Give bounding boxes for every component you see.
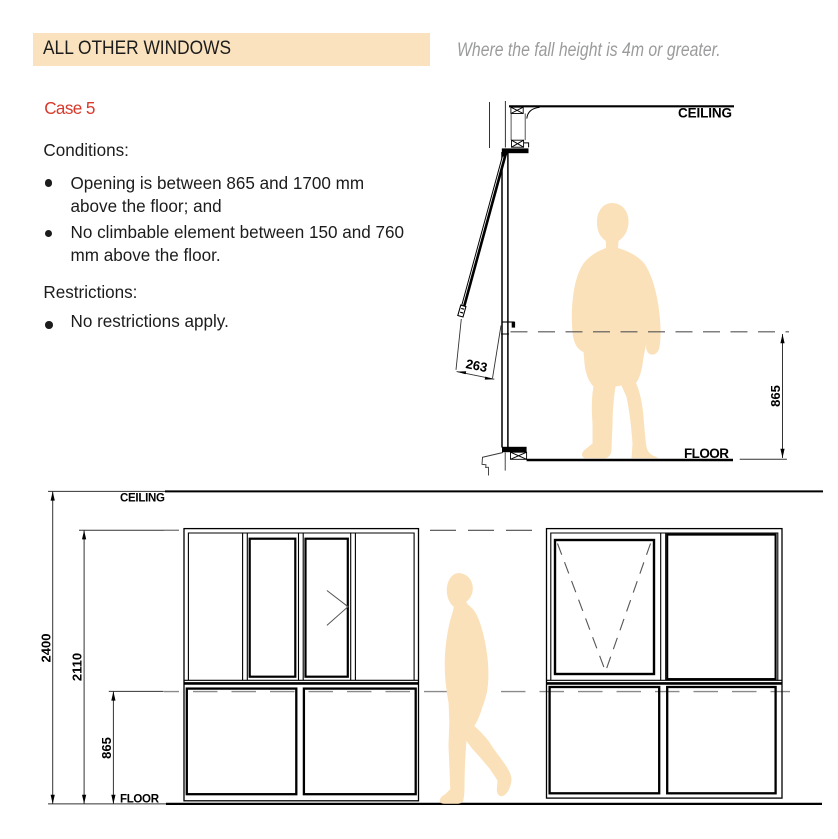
svg-text:CEILING: CEILING: [120, 492, 165, 504]
svg-text:865: 865: [99, 737, 114, 759]
svg-text:2110: 2110: [70, 653, 85, 681]
svg-text:CEILING: CEILING: [678, 105, 732, 120]
svg-text:FLOOR: FLOOR: [120, 794, 160, 806]
svg-text:FLOOR: FLOOR: [684, 446, 729, 461]
svg-text:865: 865: [768, 385, 783, 407]
svg-text:2400: 2400: [39, 634, 54, 663]
svg-text:263: 263: [464, 356, 488, 375]
